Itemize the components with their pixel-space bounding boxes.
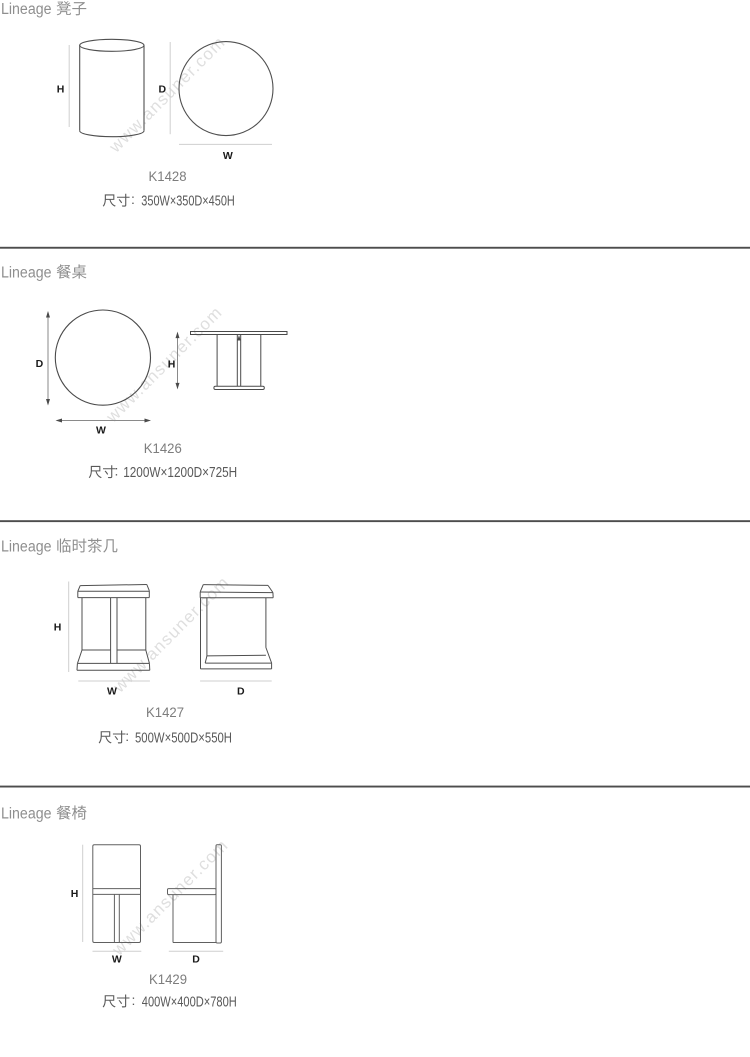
- svg-text::: :: [131, 191, 135, 207]
- svg-text:D: D: [192, 953, 200, 965]
- svg-text:W: W: [112, 953, 122, 965]
- svg-text:H: H: [54, 621, 62, 633]
- svg-text:D: D: [237, 685, 245, 697]
- svg-text:D: D: [159, 83, 167, 95]
- svg-text::: :: [115, 463, 119, 479]
- svg-text:400W×400D×780H: 400W×400D×780H: [142, 994, 237, 1010]
- svg-text:K1427: K1427: [146, 704, 184, 720]
- svg-text:Lineage: Lineage: [1, 264, 52, 281]
- svg-text:350W×350D×450H: 350W×350D×450H: [141, 194, 235, 210]
- svg-text:W: W: [223, 150, 233, 162]
- svg-text:K1428: K1428: [149, 168, 187, 184]
- svg-text:Lineage: Lineage: [1, 1, 52, 18]
- svg-text:Lineage: Lineage: [1, 805, 52, 822]
- svg-text:1200W×1200D×725H: 1200W×1200D×725H: [123, 465, 237, 481]
- svg-text:500W×500D×550H: 500W×500D×550H: [135, 730, 232, 746]
- svg-text:W: W: [96, 424, 106, 436]
- svg-text:Lineage: Lineage: [1, 538, 52, 555]
- svg-text::: :: [131, 992, 135, 1008]
- svg-text:H: H: [71, 888, 79, 900]
- svg-text::: :: [125, 728, 129, 744]
- svg-text:D: D: [36, 358, 44, 370]
- svg-text:K1426: K1426: [144, 440, 182, 456]
- svg-text:K1429: K1429: [149, 971, 187, 987]
- svg-text:H: H: [57, 83, 65, 95]
- svg-text:W: W: [107, 685, 117, 697]
- svg-text:H: H: [168, 358, 176, 370]
